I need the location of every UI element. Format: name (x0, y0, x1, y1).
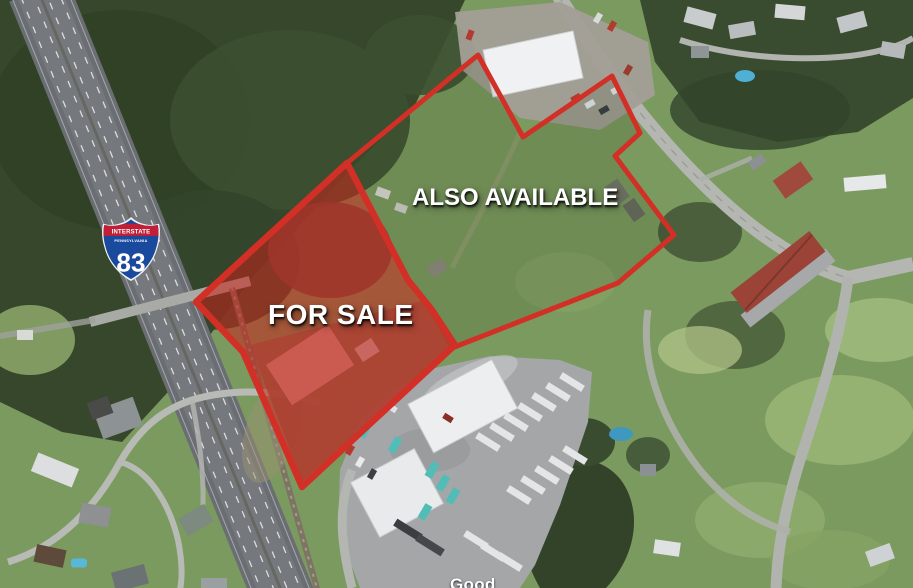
for-sale-label: FOR SALE (268, 299, 414, 331)
aerial-basemap (0, 0, 913, 588)
aerial-property-map: INTERSTATE PENNSYLVANIA 83 FOR SALE ALSO… (0, 0, 913, 588)
interstate-83-shield: INTERSTATE PENNSYLVANIA 83 (100, 216, 162, 282)
also-available-label: ALSO AVAILABLE (412, 184, 618, 212)
shield-interstate-text: INTERSTATE (112, 229, 151, 235)
shield-state-text: PENNSYLVANIA (114, 238, 147, 243)
basemap-place-label-partial: Good (450, 575, 496, 588)
swimming-pool (71, 559, 87, 568)
